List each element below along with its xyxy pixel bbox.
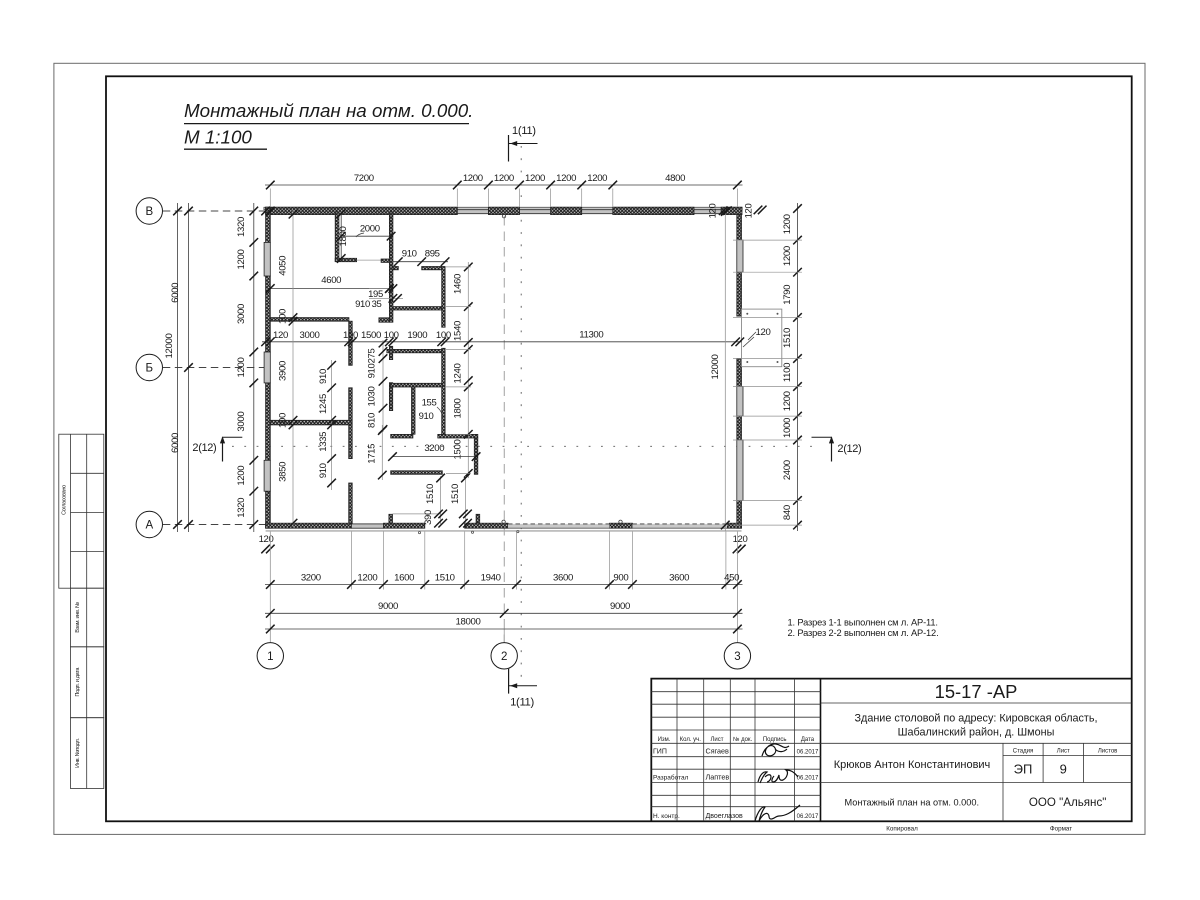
svg-text:1790: 1790 <box>782 285 793 305</box>
svg-text:12000: 12000 <box>164 334 175 359</box>
svg-text:100: 100 <box>436 330 451 341</box>
svg-text:2: 2 <box>501 651 507 663</box>
svg-text:1200: 1200 <box>463 173 483 184</box>
svg-text:Крюков Антон Константинович: Крюков Антон Константинович <box>834 759 991 771</box>
svg-text:35: 35 <box>372 299 382 310</box>
svg-text:120: 120 <box>708 204 719 219</box>
svg-text:910: 910 <box>419 411 434 422</box>
svg-text:ГИП: ГИП <box>653 749 667 756</box>
svg-text:6000: 6000 <box>170 283 181 303</box>
svg-text:2000: 2000 <box>360 223 380 234</box>
svg-text:Сягаев: Сягаев <box>706 747 730 756</box>
svg-text:910: 910 <box>318 463 329 478</box>
svg-text:6000: 6000 <box>170 433 181 453</box>
svg-text:3200: 3200 <box>424 443 444 454</box>
svg-text:Формат: Формат <box>1050 825 1072 832</box>
svg-text:1000: 1000 <box>782 418 793 438</box>
svg-text:100: 100 <box>343 330 358 341</box>
svg-text:Изм.: Изм. <box>658 737 671 743</box>
svg-text:450: 450 <box>724 572 739 583</box>
svg-text:120: 120 <box>273 330 288 341</box>
svg-text:1540: 1540 <box>453 321 464 341</box>
svg-text:100: 100 <box>278 309 289 324</box>
svg-text:Подпись: Подпись <box>763 737 787 743</box>
svg-text:Взам. инв. №: Взам. инв. № <box>75 602 81 633</box>
svg-text:1800: 1800 <box>453 399 464 419</box>
svg-text:275: 275 <box>367 349 378 364</box>
svg-text:18000: 18000 <box>456 617 481 628</box>
svg-text:Монтажный план на отм. 0.000.: Монтажный план на отм. 0.000. <box>845 798 980 808</box>
svg-text:Монтажный план на отм. 0.000.: Монтажный план на отм. 0.000. <box>184 100 473 121</box>
svg-text:3200: 3200 <box>301 572 321 583</box>
svg-text:1200: 1200 <box>494 173 514 184</box>
svg-text:2(12): 2(12) <box>192 442 216 454</box>
svg-text:1320: 1320 <box>236 498 247 518</box>
svg-text:15-17 -АР: 15-17 -АР <box>935 681 1018 702</box>
svg-text:12000: 12000 <box>710 355 721 380</box>
svg-text:9000: 9000 <box>610 601 630 612</box>
svg-text:9000: 9000 <box>378 601 398 612</box>
svg-text:3000: 3000 <box>236 412 247 432</box>
svg-text:ООО "Альянс": ООО "Альянс" <box>1029 796 1107 809</box>
svg-text:840: 840 <box>782 505 793 520</box>
svg-text:06.2017: 06.2017 <box>797 776 819 782</box>
svg-text:910: 910 <box>318 369 329 384</box>
svg-text:4050: 4050 <box>278 256 289 276</box>
svg-text:№ док.: № док. <box>733 736 753 743</box>
svg-text:2(12): 2(12) <box>837 443 861 455</box>
svg-text:9: 9 <box>1060 762 1067 777</box>
svg-text:1200: 1200 <box>587 173 607 184</box>
svg-text:2400: 2400 <box>782 460 793 480</box>
svg-text:1460: 1460 <box>453 274 464 294</box>
svg-text:3000: 3000 <box>300 330 320 341</box>
svg-text:1200: 1200 <box>236 250 247 270</box>
svg-text:1500: 1500 <box>361 330 381 341</box>
svg-text:120: 120 <box>744 204 755 219</box>
svg-text:1320: 1320 <box>236 217 247 237</box>
svg-text:1030: 1030 <box>367 387 378 407</box>
svg-text:3000: 3000 <box>236 304 247 324</box>
svg-text:Листов: Листов <box>1098 749 1118 755</box>
svg-text:390: 390 <box>423 510 434 525</box>
svg-text:900: 900 <box>613 572 628 583</box>
svg-text:1(11): 1(11) <box>512 125 536 137</box>
svg-text:1100: 1100 <box>782 363 793 382</box>
svg-text:895: 895 <box>425 249 440 260</box>
svg-text:Б: Б <box>146 363 154 375</box>
svg-text:1510: 1510 <box>425 484 436 504</box>
svg-text:Кол. уч.: Кол. уч. <box>680 737 702 743</box>
svg-text:1510: 1510 <box>435 572 455 583</box>
svg-text:910: 910 <box>367 364 378 379</box>
svg-text:Стадия: Стадия <box>1013 749 1033 755</box>
svg-text:11300: 11300 <box>579 330 603 341</box>
svg-text:1200: 1200 <box>782 391 793 411</box>
svg-text:1(11): 1(11) <box>510 696 534 708</box>
svg-text:1200: 1200 <box>236 358 247 378</box>
svg-text:Здание столовой по адресу: Кир: Здание столовой по адресу: Кировская обл… <box>855 713 1098 725</box>
svg-text:06.2017: 06.2017 <box>797 750 819 756</box>
svg-text:1900: 1900 <box>407 330 427 341</box>
svg-text:4600: 4600 <box>321 275 341 286</box>
svg-text:910: 910 <box>355 299 370 310</box>
svg-text:1715: 1715 <box>367 444 378 464</box>
svg-text:Лист: Лист <box>710 737 723 743</box>
svg-text:ЭП: ЭП <box>1014 762 1033 777</box>
svg-text:1335: 1335 <box>318 432 329 452</box>
svg-text:3600: 3600 <box>553 572 573 583</box>
svg-text:3: 3 <box>734 651 740 663</box>
svg-text:Лаптев: Лаптев <box>706 773 730 782</box>
svg-text:Копировал: Копировал <box>886 825 918 832</box>
svg-text:Шабалинский район, д. Шмоны: Шабалинский район, д. Шмоны <box>898 727 1055 739</box>
svg-text:1245: 1245 <box>318 394 329 414</box>
svg-text:3600: 3600 <box>669 572 689 583</box>
svg-text:100: 100 <box>278 413 289 428</box>
svg-text:06.2017: 06.2017 <box>797 814 819 820</box>
svg-text:1. Разрез 1-1 выполнен см л. А: 1. Разрез 1-1 выполнен см л. АР-11. <box>788 617 938 627</box>
svg-text:Лист: Лист <box>1057 749 1070 755</box>
svg-text:3900: 3900 <box>278 361 289 381</box>
svg-text:1200: 1200 <box>236 466 247 486</box>
svg-text:1200: 1200 <box>556 173 576 184</box>
svg-text:В: В <box>145 206 153 218</box>
svg-text:2. Разрез 2-2 выполнен см л. А: 2. Разрез 2-2 выполнен см л. АР-12. <box>788 628 939 638</box>
svg-text:910: 910 <box>402 249 417 260</box>
svg-text:1600: 1600 <box>394 572 414 583</box>
svg-text:Разработал: Разработал <box>653 774 689 782</box>
svg-text:3850: 3850 <box>278 462 289 482</box>
svg-text:Дата: Дата <box>801 737 815 743</box>
svg-text:Согласовано: Согласовано <box>61 485 67 515</box>
svg-text:Двоеглазов: Двоеглазов <box>706 813 743 820</box>
svg-text:4800: 4800 <box>665 173 685 184</box>
svg-text:810: 810 <box>367 413 378 428</box>
svg-text:1240: 1240 <box>453 364 464 384</box>
svg-text:Н. контр.: Н. контр. <box>653 813 680 820</box>
svg-text:М 1:100: М 1:100 <box>184 127 252 148</box>
svg-text:1510: 1510 <box>450 484 461 504</box>
svg-text:1200: 1200 <box>357 572 377 583</box>
svg-text:Инв. №подл.: Инв. №подл. <box>75 738 81 768</box>
svg-text:120: 120 <box>259 534 274 545</box>
svg-text:120: 120 <box>733 534 748 545</box>
svg-text:1510: 1510 <box>782 328 793 348</box>
svg-text:1: 1 <box>267 651 273 663</box>
svg-text:1200: 1200 <box>782 246 793 266</box>
svg-text:155: 155 <box>422 398 437 409</box>
svg-text:1200: 1200 <box>525 173 545 184</box>
svg-text:7200: 7200 <box>354 173 374 184</box>
svg-text:1200: 1200 <box>782 214 793 234</box>
svg-text:А: А <box>145 520 153 532</box>
svg-text:120: 120 <box>756 327 771 338</box>
svg-text:1940: 1940 <box>481 572 501 583</box>
svg-text:Подп. и дата: Подп. и дата <box>75 667 81 697</box>
